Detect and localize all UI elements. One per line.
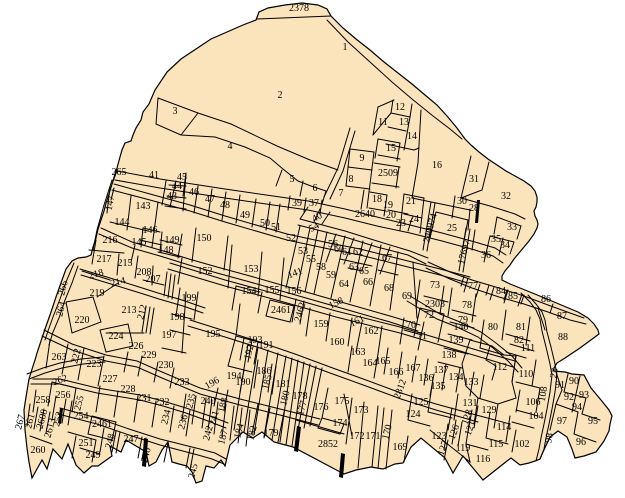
svg-text:163: 163 xyxy=(351,347,366,358)
svg-text:232: 232 xyxy=(155,397,170,408)
svg-text:16: 16 xyxy=(432,160,442,171)
svg-text:129: 129 xyxy=(482,405,497,416)
svg-text:23: 23 xyxy=(396,218,406,229)
svg-text:86: 86 xyxy=(541,294,551,305)
svg-text:233: 233 xyxy=(175,377,190,388)
svg-text:28: 28 xyxy=(469,203,479,214)
svg-text:249: 249 xyxy=(86,450,101,461)
svg-text:169: 169 xyxy=(393,442,408,453)
svg-text:2509: 2509 xyxy=(378,168,398,179)
svg-text:96: 96 xyxy=(576,437,586,448)
svg-text:208: 208 xyxy=(137,267,152,278)
svg-text:195: 195 xyxy=(206,329,221,340)
svg-text:231: 231 xyxy=(137,393,152,404)
svg-text:35: 35 xyxy=(491,234,501,245)
svg-text:258: 258 xyxy=(36,395,51,406)
svg-text:160: 160 xyxy=(330,337,345,348)
svg-text:171: 171 xyxy=(366,431,381,442)
svg-text:77: 77 xyxy=(468,281,478,292)
svg-text:155: 155 xyxy=(265,285,280,296)
svg-text:45: 45 xyxy=(177,172,187,183)
svg-text:97: 97 xyxy=(557,416,567,427)
svg-text:125: 125 xyxy=(414,397,429,408)
svg-text:137: 137 xyxy=(434,365,449,376)
svg-text:49: 49 xyxy=(240,210,250,221)
svg-text:36: 36 xyxy=(481,250,491,261)
svg-text:72: 72 xyxy=(424,310,434,321)
svg-text:20: 20 xyxy=(386,210,396,221)
svg-text:66: 66 xyxy=(363,277,373,288)
svg-text:224: 224 xyxy=(109,331,124,342)
svg-text:172: 172 xyxy=(350,431,365,442)
svg-text:230: 230 xyxy=(159,360,174,371)
svg-text:138: 138 xyxy=(442,350,457,361)
svg-text:65: 65 xyxy=(359,266,369,277)
svg-text:46: 46 xyxy=(189,187,199,198)
svg-text:12: 12 xyxy=(395,102,405,113)
svg-text:223: 223 xyxy=(87,359,102,370)
svg-text:69: 69 xyxy=(402,291,412,302)
svg-text:139: 139 xyxy=(449,335,464,346)
svg-text:159: 159 xyxy=(314,319,329,330)
svg-text:81: 81 xyxy=(516,322,526,333)
svg-text:41: 41 xyxy=(149,170,159,181)
svg-text:18: 18 xyxy=(372,194,382,205)
svg-text:67: 67 xyxy=(382,253,392,264)
svg-text:181: 181 xyxy=(276,379,291,390)
svg-text:197: 197 xyxy=(162,330,177,341)
svg-text:136: 136 xyxy=(419,373,434,384)
svg-text:263: 263 xyxy=(52,352,67,363)
svg-text:23: 23 xyxy=(548,367,561,379)
svg-text:144: 144 xyxy=(115,217,130,228)
svg-text:143: 143 xyxy=(136,201,151,212)
svg-text:167: 167 xyxy=(406,363,421,374)
svg-text:6: 6 xyxy=(313,183,318,194)
svg-text:80: 80 xyxy=(488,322,498,333)
svg-text:152: 152 xyxy=(198,266,213,277)
svg-text:63: 63 xyxy=(349,262,359,273)
svg-text:5: 5 xyxy=(290,174,295,185)
svg-text:112: 112 xyxy=(493,362,508,373)
svg-text:33: 33 xyxy=(507,222,517,233)
svg-text:116: 116 xyxy=(476,454,491,465)
svg-text:175: 175 xyxy=(335,396,350,407)
svg-text:149: 149 xyxy=(165,235,180,246)
svg-text:2378: 2378 xyxy=(289,3,309,14)
svg-text:84: 84 xyxy=(496,286,506,297)
svg-text:228: 228 xyxy=(121,384,136,395)
svg-text:94: 94 xyxy=(572,402,582,413)
svg-text:2461: 2461 xyxy=(271,305,291,316)
svg-text:179: 179 xyxy=(264,428,279,439)
svg-text:104: 104 xyxy=(529,411,544,422)
svg-text:165: 165 xyxy=(376,356,391,367)
svg-text:24: 24 xyxy=(409,214,419,225)
svg-text:43: 43 xyxy=(167,191,177,202)
svg-text:13: 13 xyxy=(399,117,409,128)
svg-text:229: 229 xyxy=(142,350,157,361)
svg-text:34: 34 xyxy=(500,240,510,251)
svg-text:219: 219 xyxy=(90,288,105,299)
svg-text:254: 254 xyxy=(74,411,89,422)
svg-text:88: 88 xyxy=(558,332,568,343)
svg-text:59: 59 xyxy=(326,270,336,281)
svg-text:48: 48 xyxy=(220,200,230,211)
svg-text:7: 7 xyxy=(339,188,344,199)
svg-text:2303: 2303 xyxy=(425,299,445,310)
svg-text:50: 50 xyxy=(260,218,270,229)
svg-text:193: 193 xyxy=(248,335,263,346)
svg-text:140: 140 xyxy=(454,322,469,333)
svg-text:156: 156 xyxy=(287,286,302,297)
svg-text:260: 260 xyxy=(31,445,46,456)
svg-text:98: 98 xyxy=(543,432,556,444)
svg-text:110: 110 xyxy=(519,369,534,380)
svg-text:9: 9 xyxy=(360,153,365,164)
svg-text:199: 199 xyxy=(182,293,197,304)
svg-text:37: 37 xyxy=(309,198,319,209)
svg-text:173: 173 xyxy=(354,405,369,416)
svg-text:166: 166 xyxy=(389,367,404,378)
svg-text:3: 3 xyxy=(173,106,178,117)
svg-text:39: 39 xyxy=(292,198,302,209)
svg-text:8: 8 xyxy=(349,174,354,185)
svg-text:73: 73 xyxy=(430,280,440,291)
svg-text:148: 148 xyxy=(159,245,174,256)
svg-text:2461: 2461 xyxy=(92,419,112,430)
svg-text:154: 154 xyxy=(242,286,257,297)
svg-text:194: 194 xyxy=(227,371,242,382)
svg-text:70: 70 xyxy=(406,320,416,331)
svg-text:85: 85 xyxy=(508,291,518,302)
svg-text:32: 32 xyxy=(501,191,511,202)
svg-text:52: 52 xyxy=(286,233,296,244)
svg-text:11: 11 xyxy=(378,117,388,128)
svg-text:227: 227 xyxy=(103,374,118,385)
svg-text:119: 119 xyxy=(456,443,471,454)
svg-text:216: 216 xyxy=(103,235,118,246)
svg-text:2640: 2640 xyxy=(355,209,375,220)
svg-text:21: 21 xyxy=(406,196,416,207)
svg-text:14: 14 xyxy=(407,131,417,142)
svg-text:91: 91 xyxy=(555,380,565,391)
svg-text:47: 47 xyxy=(205,194,215,205)
svg-text:58: 58 xyxy=(316,262,326,273)
svg-text:134: 134 xyxy=(449,372,464,383)
svg-text:178: 178 xyxy=(293,391,308,402)
svg-text:131: 131 xyxy=(463,398,478,409)
svg-text:174: 174 xyxy=(333,418,348,429)
svg-text:95: 95 xyxy=(588,416,598,427)
svg-text:198: 198 xyxy=(170,312,185,323)
svg-text:145: 145 xyxy=(132,237,147,248)
svg-text:162: 162 xyxy=(364,326,379,337)
svg-text:111: 111 xyxy=(521,343,535,354)
svg-text:115: 115 xyxy=(489,439,504,450)
svg-text:31: 31 xyxy=(469,174,479,185)
svg-text:251: 251 xyxy=(79,438,94,449)
svg-text:123: 123 xyxy=(432,431,447,442)
svg-text:62: 62 xyxy=(353,247,363,258)
svg-text:1: 1 xyxy=(343,42,348,53)
svg-text:146: 146 xyxy=(143,225,158,236)
svg-text:240: 240 xyxy=(201,396,216,407)
svg-text:25: 25 xyxy=(447,223,457,234)
svg-text:265: 265 xyxy=(112,167,127,178)
svg-text:60: 60 xyxy=(334,244,344,255)
svg-text:64: 64 xyxy=(339,279,349,290)
svg-text:30: 30 xyxy=(457,196,467,207)
svg-text:55: 55 xyxy=(306,254,316,265)
svg-text:247: 247 xyxy=(124,434,139,445)
svg-text:176: 176 xyxy=(314,402,329,413)
svg-text:102: 102 xyxy=(515,439,530,450)
svg-text:124: 124 xyxy=(406,409,421,420)
svg-text:256: 256 xyxy=(56,390,71,401)
svg-text:114: 114 xyxy=(497,422,512,433)
svg-text:71: 71 xyxy=(417,331,427,342)
svg-text:15: 15 xyxy=(386,143,396,154)
svg-text:150: 150 xyxy=(197,233,212,244)
svg-text:93: 93 xyxy=(579,390,589,401)
svg-text:78: 78 xyxy=(462,300,472,311)
svg-text:217: 217 xyxy=(97,254,112,265)
svg-text:2852: 2852 xyxy=(318,439,338,450)
svg-text:4: 4 xyxy=(228,141,233,152)
svg-text:2: 2 xyxy=(278,90,283,101)
svg-text:186: 186 xyxy=(257,366,272,377)
svg-text:51: 51 xyxy=(271,222,281,233)
svg-text:220: 220 xyxy=(75,315,90,326)
svg-text:153: 153 xyxy=(244,264,259,275)
svg-text:90: 90 xyxy=(569,376,579,387)
svg-text:68: 68 xyxy=(384,283,394,294)
svg-text:213: 213 xyxy=(122,305,137,316)
svg-text:215: 215 xyxy=(118,258,133,269)
svg-text:133: 133 xyxy=(464,377,479,388)
svg-text:87: 87 xyxy=(557,311,567,322)
